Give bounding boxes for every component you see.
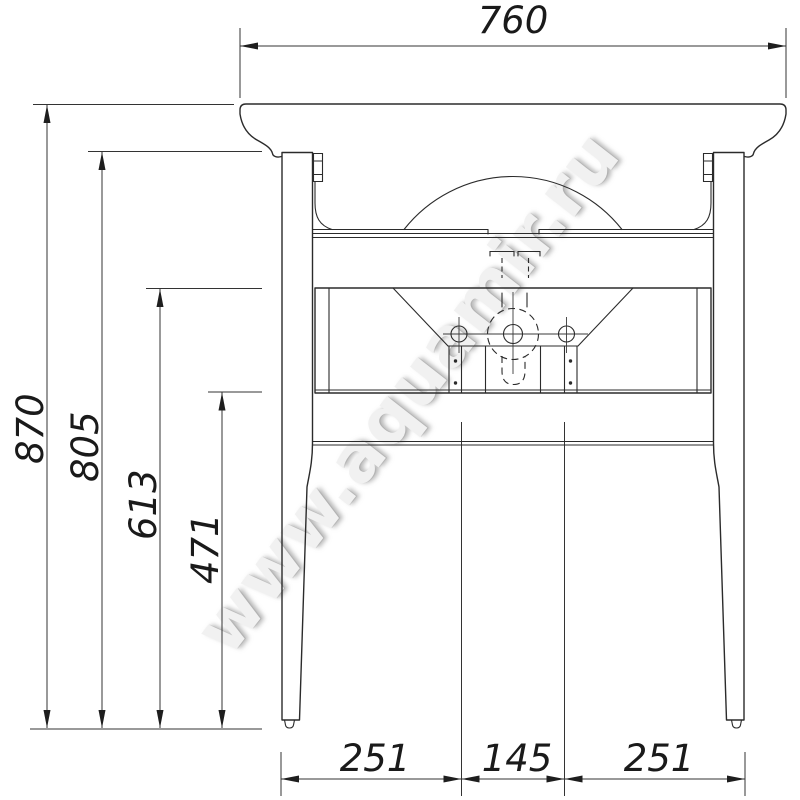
arrowhead [157,289,164,307]
dimension-overall-width: 760 [240,0,786,98]
arrowhead [281,776,299,783]
dim-label-bottom-left: 251 [340,737,411,780]
washbasin-top-outline [240,104,786,157]
dimension-bottom-spans: 251 145 251 [281,422,745,796]
faucet-slot-left [490,252,514,257]
left-leg-outline [282,153,313,721]
dim-label-bottom-center: 145 [482,737,553,780]
technical-drawing-page: www.aquamir.ru 760 870 805 [0,0,800,800]
screw-dot [454,359,457,362]
arrowhead [219,393,226,411]
dim-label-frame-top-height: 613 [122,469,165,540]
arrowhead [219,710,226,728]
left-leg-foot [285,720,295,728]
basin-underside-left [315,182,332,230]
arrowhead [727,776,745,783]
dimension-overall-height: 870 [9,105,234,729]
left-leg-bracket [314,154,323,182]
arrowhead [44,710,51,728]
screw-dot [569,381,572,384]
left-leg [282,153,323,729]
arrowhead [444,776,462,783]
faucet-slot-right [518,252,540,257]
dim-label-leg-top-height: 805 [64,411,107,482]
right-leg-outline [714,153,745,721]
screw-dot [569,359,572,362]
arrowhead [44,105,51,123]
drain-assembly [443,292,588,393]
right-leg-foot [732,720,742,728]
bowl-projection-left-diagonal [393,288,448,346]
washbasin-console-drawing: 760 870 805 613 [0,0,800,800]
arrowhead [99,710,106,728]
screw-dot [454,381,457,384]
arrowhead [768,43,786,50]
arrowhead [565,776,583,783]
basin-bowl-dome [404,177,622,230]
dimension-frame-bottom-height: 471 [184,392,262,728]
arrowhead [99,152,106,170]
dim-label-overall-width: 760 [478,0,549,42]
siphon-trap-hidden [502,356,525,385]
dimension-leg-top-height: 805 [64,152,262,729]
right-leg [704,153,745,729]
dim-label-overall-height: 870 [9,393,52,464]
lower-apron [313,442,714,446]
dim-label-frame-bottom-height: 471 [184,513,227,584]
arrowhead [240,43,258,50]
arrowhead [462,776,480,783]
dimension-frame-top-height: 613 [122,289,262,729]
bowl-projection-right-diagonal [578,288,633,346]
dim-label-bottom-right: 251 [624,737,695,780]
right-leg-bracket [704,154,713,182]
upper-rail [313,230,714,238]
arrowhead [157,710,164,728]
basin-underside-right [694,182,711,230]
faucet-hidden-lines [490,252,540,279]
